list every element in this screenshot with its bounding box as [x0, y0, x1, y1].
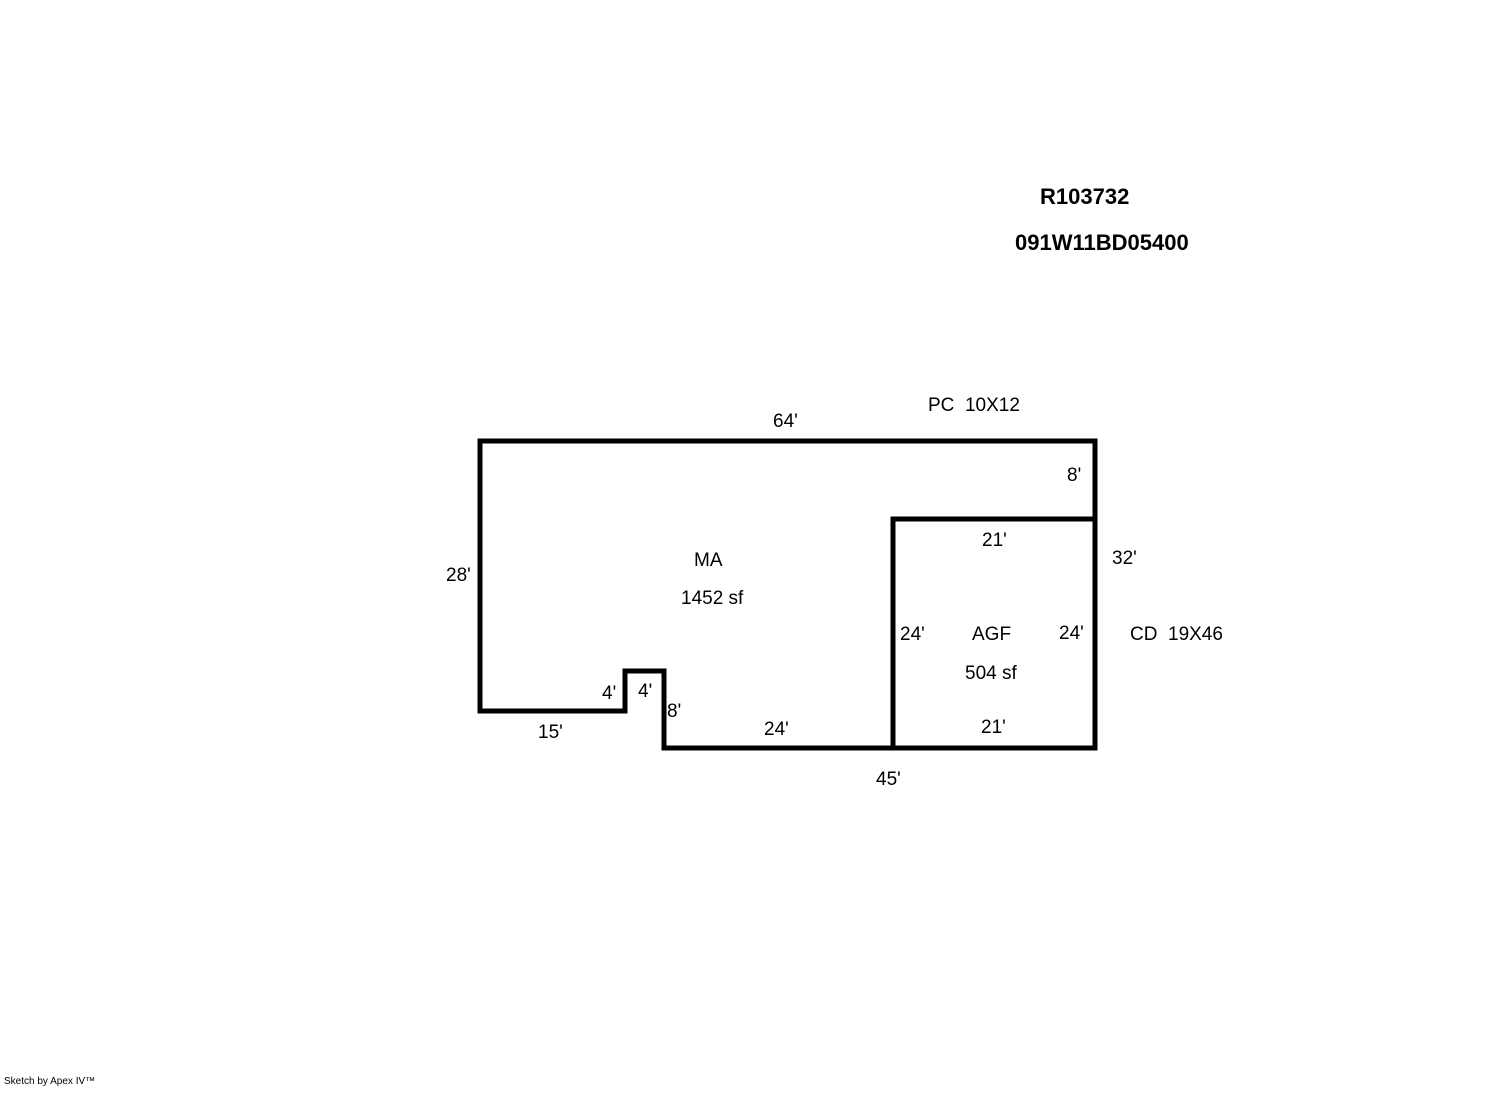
- garage-size: 504 sf: [965, 664, 1017, 685]
- dim-agf-bottom-21: 21': [981, 718, 1006, 739]
- dim-bottom-total-45: 45': [876, 770, 901, 791]
- dim-top-64: 64': [773, 412, 798, 433]
- sketch-credit: Sketch by Apex IV™: [4, 1076, 95, 1087]
- record-id: R103732: [1040, 184, 1129, 210]
- dim-bottom-mid-24: 24': [764, 720, 789, 741]
- main-area-code: MA: [694, 551, 723, 572]
- main-outline: [480, 441, 1095, 748]
- main-area-size: 1452 sf: [681, 589, 743, 610]
- dim-agf-left-24: 24': [900, 625, 925, 646]
- dim-right-total-32: 32': [1112, 549, 1137, 570]
- dim-agf-right-24: 24': [1059, 624, 1084, 645]
- dim-notch-right-8: 8': [667, 702, 681, 723]
- dim-bottom-left-15: 15': [538, 723, 563, 744]
- dim-left-28: 28': [446, 566, 471, 587]
- floor-plan-drawing: [0, 0, 1492, 1094]
- dim-right-upper-8: 8': [1067, 466, 1081, 487]
- porch-note: PC 10X12: [928, 396, 1020, 417]
- dim-notch-top-4: 4': [638, 682, 652, 703]
- parcel-id: 091W11BD05400: [1015, 230, 1189, 256]
- garage-code: AGF: [972, 625, 1011, 646]
- carport-deck-note: CD 19X46: [1130, 625, 1223, 646]
- sketch-page: R103732 091W11BD05400 64' PC 10X12 8' 21…: [0, 0, 1492, 1094]
- dim-notch-left-4: 4': [602, 684, 616, 705]
- dim-agf-top-21: 21': [982, 531, 1007, 552]
